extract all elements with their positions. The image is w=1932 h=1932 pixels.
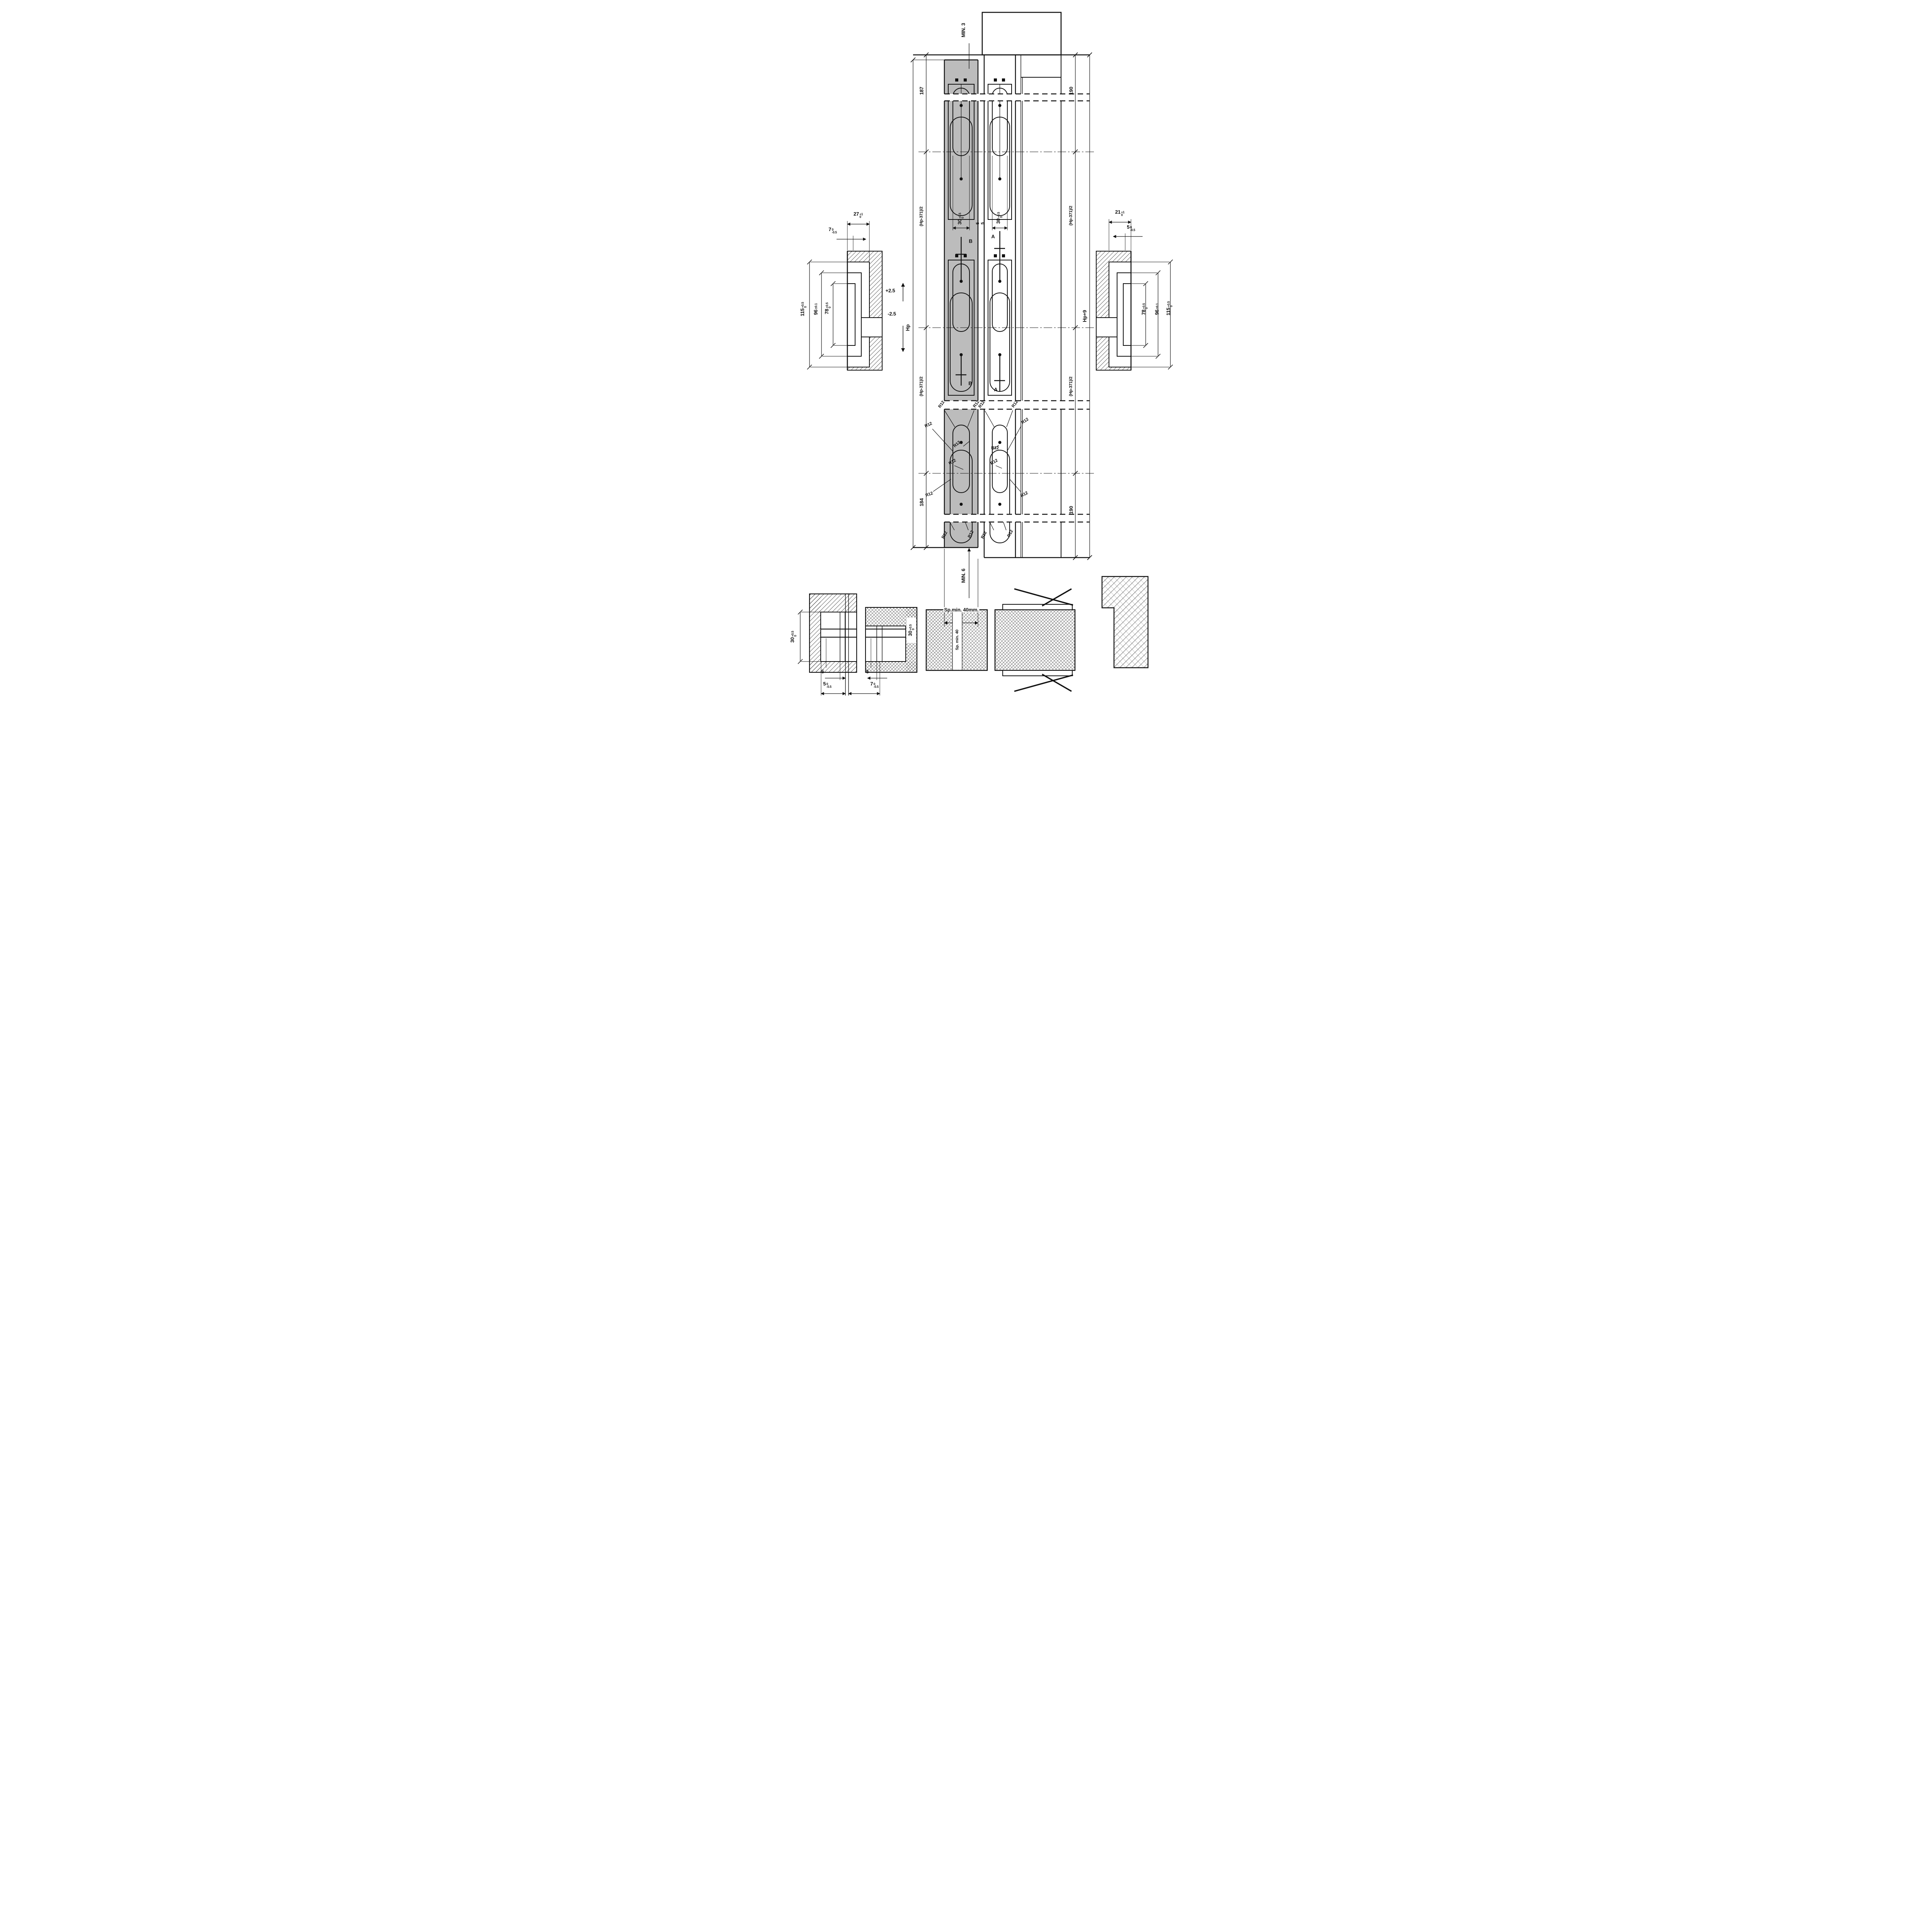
drawing-linework [705,0,1227,696]
dim-78-left: 78+0.50 [824,303,831,315]
dim-96-left: 96±0.1 [813,303,818,315]
dim-27: 27+10 [854,211,863,218]
frame-jamb-block [1102,577,1148,668]
dim-30-door-plan: 30+0.50 [908,624,915,636]
dim-sp-min-40mm: Sp.min. 40mm. [943,607,979,612]
dim-7-door-plan: 70-0.5 [870,681,879,688]
dim-30-door: 30+0.50 [957,213,964,225]
dim-30-frame: 30+0.50 [996,212,1003,224]
dim-115-right: 115+0.50 [1166,301,1173,316]
right-section-detail [1096,219,1173,370]
adjust-minus-2-5: -2.5 [888,311,896,316]
label-sp-min-40: Sp. min. 40 [955,629,959,650]
left-section-detail [807,221,882,370]
plan-detail-frame [798,594,857,696]
drawing-sheet: 187 (Hp-371)/2 (Hp-371)/2 184 190 (Hp-37… [705,0,1227,696]
dim-96-right: 96±0.1 [1155,303,1160,315]
dim-min-3: MIN. 3 [961,23,966,37]
dim-115-left: 115+0.50 [800,302,807,316]
section-mark-b-bottom: B [968,381,972,386]
dim-5-frame-plan: 5 [821,669,824,674]
dim-5-door-edge: 5 [976,222,980,224]
dim-5-door-plan: 5 [866,669,869,674]
door-with-hinge-block [995,589,1075,691]
dim-min-6: MIN. 6 [961,568,966,583]
dim-5-tol-frame-plan: 50-0.5 [823,681,832,688]
dim-7: 70-0.5 [828,227,837,234]
dim-hp-371-2-right-lower: (Hp-371)/2 [1069,376,1073,396]
adjust-plus-2-5: +2.5 [886,288,895,293]
dim-78-right: 78+0.50 [1141,303,1148,315]
radius-r12: R12 [991,446,999,451]
dim-187: 187 [919,87,924,95]
dim-hp-plus-9: Hp+9 [1082,310,1087,322]
dim-hp-371-2-left-upper: (Hp-371)/2 [920,206,924,226]
dim-30-frame-plan: 30+0.50 [790,631,797,643]
dim-5-frame-edge: 5 [981,222,985,224]
section-mark-a-bottom: A [994,387,997,392]
dim-hp-371-2-right-upper: (Hp-371)/2 [1069,206,1073,225]
section-mark-a-top: A [991,234,995,239]
dim-21: 21+10 [1115,209,1124,216]
dim-hp-371-2-left-lower: (Hp-371)/2 [920,376,924,396]
elevation-dimensions [903,43,1092,627]
dim-190-top: 190 [1069,87,1074,95]
dim-5-tol: 50-0.5 [1127,224,1135,231]
dim-hp: Hp [905,325,910,331]
dim-184: 184 [919,498,924,506]
dim-190-bottom: 190 [1069,506,1074,514]
section-mark-b-top: B [969,239,972,244]
